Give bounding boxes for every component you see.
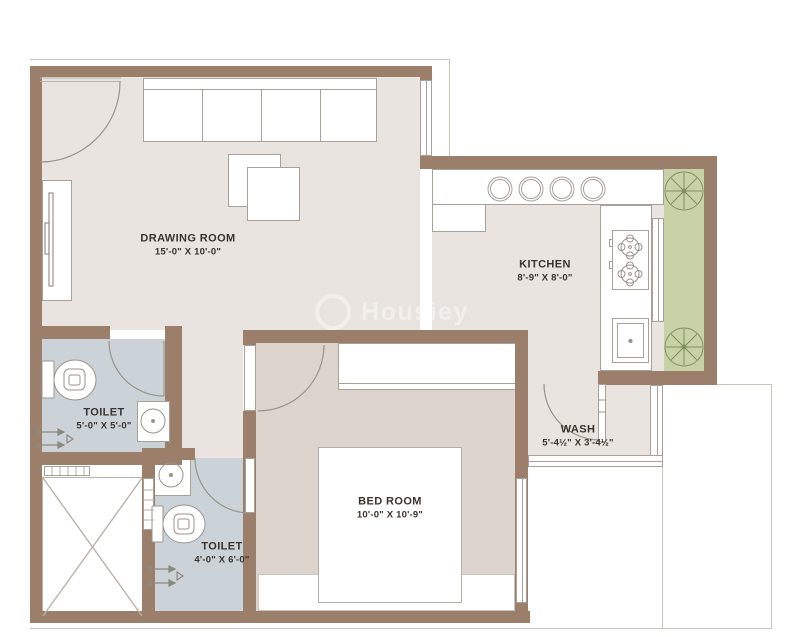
gas-hob [612,230,649,290]
exterior-outline [30,628,772,629]
wall-bottom [30,611,530,623]
planter-strip [664,169,704,371]
sofa-divider [320,89,321,141]
wall-bedroom-top [243,330,528,343]
bed [318,447,462,603]
room-name: KITCHEN [517,259,572,271]
wall-stub [420,66,432,80]
kitchen-counter-top [432,169,664,205]
room-dimensions: 15'-0" X 10'-0" [140,247,235,258]
room-name: TOILET [76,407,131,419]
sofa [143,78,377,142]
tv-unit [42,180,72,301]
exterior-outline [449,59,450,157]
watermark-text: Housiey [361,298,469,327]
toilet1-label: TOILET 5'-0" X 5'-0" [76,407,131,432]
wall-left [30,66,42,623]
exterior-outline [662,467,663,628]
watermark-logo-icon [315,294,351,330]
room-name: TOILET [194,541,249,553]
bedroom-label: BED ROOM 10'-0" X 10'-9" [357,496,423,521]
room-dimensions: 5'-4½" X 3'-4½" [542,438,613,449]
exterior-outline [30,59,450,60]
coffee-table [247,167,300,221]
wash-window-right [650,385,663,458]
room-name: DRAWING ROOM [140,233,235,245]
room-dimensions: 4'-0" X 6'-0" [194,555,249,566]
room-dimensions: 5'-0" X 5'-0" [76,421,131,432]
bedroom-door-leaf [244,345,256,411]
toilet2-door-leaf [245,458,255,513]
floor-plan: DRAWING ROOM 15'-0" X 10'-0" KITCHEN 8'-… [0,0,792,637]
bedroom-window [516,478,527,603]
wash-window-bottom [528,455,663,467]
kitchen-window [652,218,664,322]
room-name: WASH [542,424,613,436]
shelf-niche [44,466,90,476]
hob-knob [609,261,613,269]
hob-knob [609,239,613,247]
drawing-room-label: DRAWING ROOM 15'-0" X 10'-0" [140,233,235,258]
kitchen-label: KITCHEN 8'-9" X 8'-0" [517,259,572,284]
sofa-divider [261,89,262,141]
drawing-room-window [420,80,432,156]
sofa-divider [202,89,203,141]
wall-top [30,66,432,77]
room-name: BED ROOM [357,496,423,508]
exterior-outline [771,384,772,629]
passage-floor [182,326,243,458]
wash-label: WASH 5'-4½" X 3'-4½" [542,424,613,449]
sofa-back [144,79,376,90]
wall-outer-right [704,156,717,385]
wall-bedroom-left [243,411,256,623]
lift-shaft [42,477,143,617]
wall-toilet2-top [142,448,195,460]
wardrobe-door-line [339,383,515,384]
wash-basin [137,401,170,442]
wall-toilet1-top [30,326,110,339]
exterior-outline [716,384,772,385]
room-dimensions: 10'-0" X 10'-9" [357,510,423,521]
sink-basin [617,323,644,358]
wall-wash-top [598,371,717,385]
wardrobe [338,343,516,390]
wall-kitchen-top [420,156,716,169]
room-dimensions: 8'-9" X 8'-0" [517,273,572,284]
kitchen-sink [612,318,649,363]
vent-shaft [143,478,154,530]
watermark: Housiey [315,294,469,330]
toilet2-label: TOILET 4'-0" X 6'-0" [194,541,249,566]
